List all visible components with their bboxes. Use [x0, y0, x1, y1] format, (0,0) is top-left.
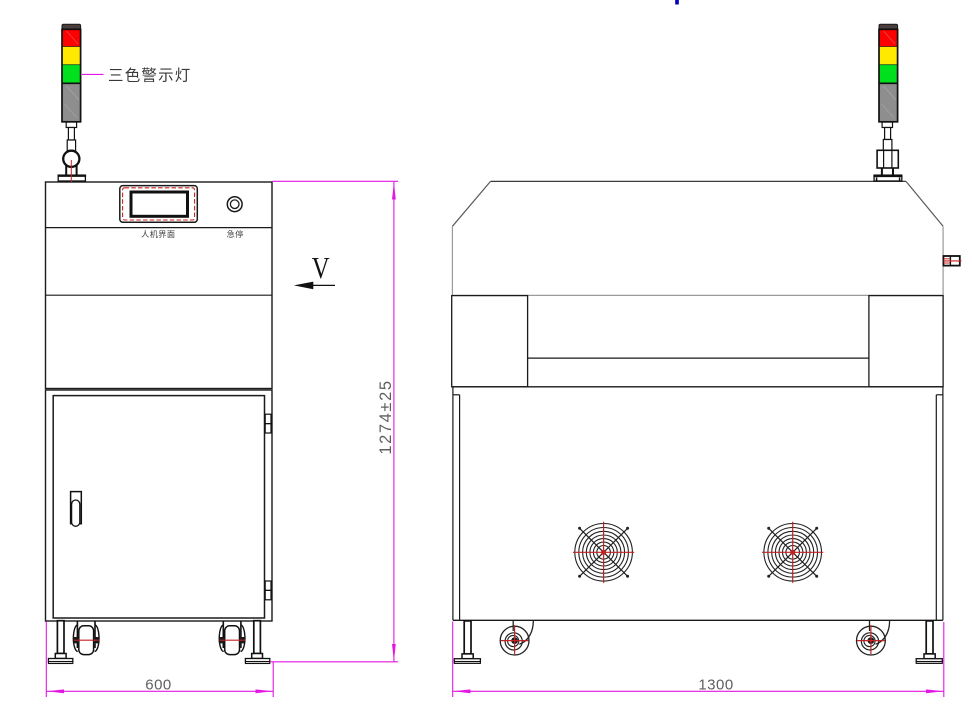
- svg-text:急停: 急停: [227, 229, 244, 239]
- svg-text:V: V: [312, 251, 330, 285]
- svg-text:1300: 1300: [698, 676, 733, 693]
- svg-text:人机界面: 人机界面: [141, 229, 175, 239]
- svg-text:600: 600: [145, 676, 172, 693]
- svg-text:1274±25: 1274±25: [377, 379, 395, 454]
- svg-text:三色警示灯: 三色警示灯: [108, 67, 192, 85]
